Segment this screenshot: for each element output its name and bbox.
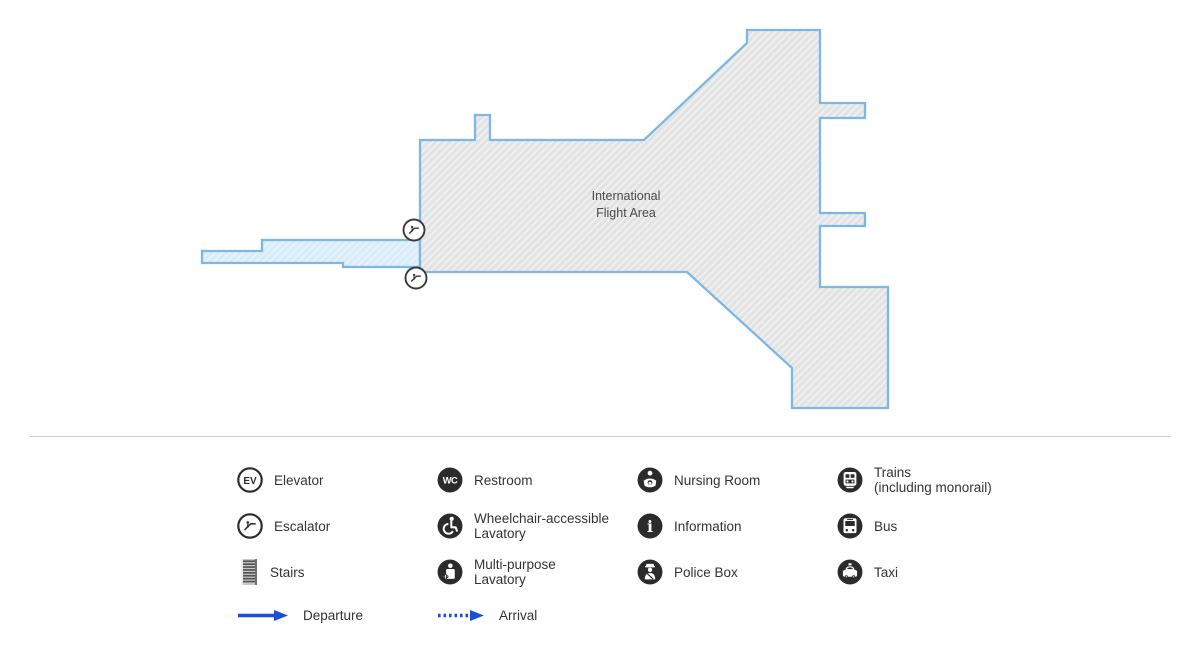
legend-label: Nursing Room [674,473,760,488]
area-label-line1: International [592,189,661,203]
legend-label: Police Box [674,565,738,580]
legend-label: Arrival [499,608,537,623]
legend-item-multipurpose-lavatory: Multi-purpose Lavatory [437,556,556,588]
legend-item-elevator: EV Elevator [237,464,324,496]
information-icon: i [637,513,663,539]
legend-label: Departure [303,608,363,623]
area-label-line2: Flight Area [596,206,656,220]
stairs-icon [239,558,259,586]
taxi-icon [837,559,863,585]
legend-item-departure: Departure [237,599,363,631]
legend-label: Trains [874,465,992,480]
trains-icon [837,467,863,493]
legend-item-information: i Information [637,510,742,542]
legend-item-trains: Trains (including monorail) [837,464,992,496]
legend-item-nursing-room: Nursing Room [637,464,760,496]
legend-item-police-box: Police Box [637,556,738,588]
nursing-room-icon [637,467,663,493]
legend-label-line2: Lavatory [474,526,609,541]
legend-item-bus: Bus [837,510,897,542]
legend-label-line2: Lavatory [474,572,556,587]
legend-item-escalator: Escalator [237,510,330,542]
legend-label: Escalator [274,519,330,534]
elevator-icon: EV [237,467,263,493]
legend-label: Elevator [274,473,324,488]
svg-text:WC: WC [443,475,458,485]
police-box-icon [637,559,663,585]
legend-item-arrival: Arrival [437,599,537,631]
legend-item-wheelchair-lavatory: Wheelchair-accessible Lavatory [437,510,609,542]
legend-label: Information [674,519,742,534]
wheelchair-lavatory-icon [437,513,463,539]
legend-label: Bus [874,519,897,534]
escalator-icon [237,513,263,539]
svg-text:i: i [647,517,653,536]
terminal-map: International Flight Area [0,0,1200,442]
legend-label-line2: (including monorail) [874,480,992,495]
multipurpose-lavatory-icon [437,559,463,585]
legend-label: Multi-purpose [474,557,556,572]
legend-label: Restroom [474,473,533,488]
escalator-map-icon-upper [404,220,425,241]
departure-arrow [237,609,289,622]
restroom-icon: WC [437,467,463,493]
legend-divider [30,436,1171,437]
legend-item-taxi: Taxi [837,556,898,588]
legend-label: Stairs [270,565,305,580]
legend-item-stairs: Stairs [239,556,305,588]
svg-text:EV: EV [243,476,257,487]
arrival-walkway-region [202,240,420,267]
bus-icon [837,513,863,539]
legend-label: Taxi [874,565,898,580]
legend-label: Wheelchair-accessible [474,511,609,526]
legend-item-restroom: WC Restroom [437,464,533,496]
arrival-arrow [437,609,485,622]
escalator-map-icon-lower [406,268,427,289]
